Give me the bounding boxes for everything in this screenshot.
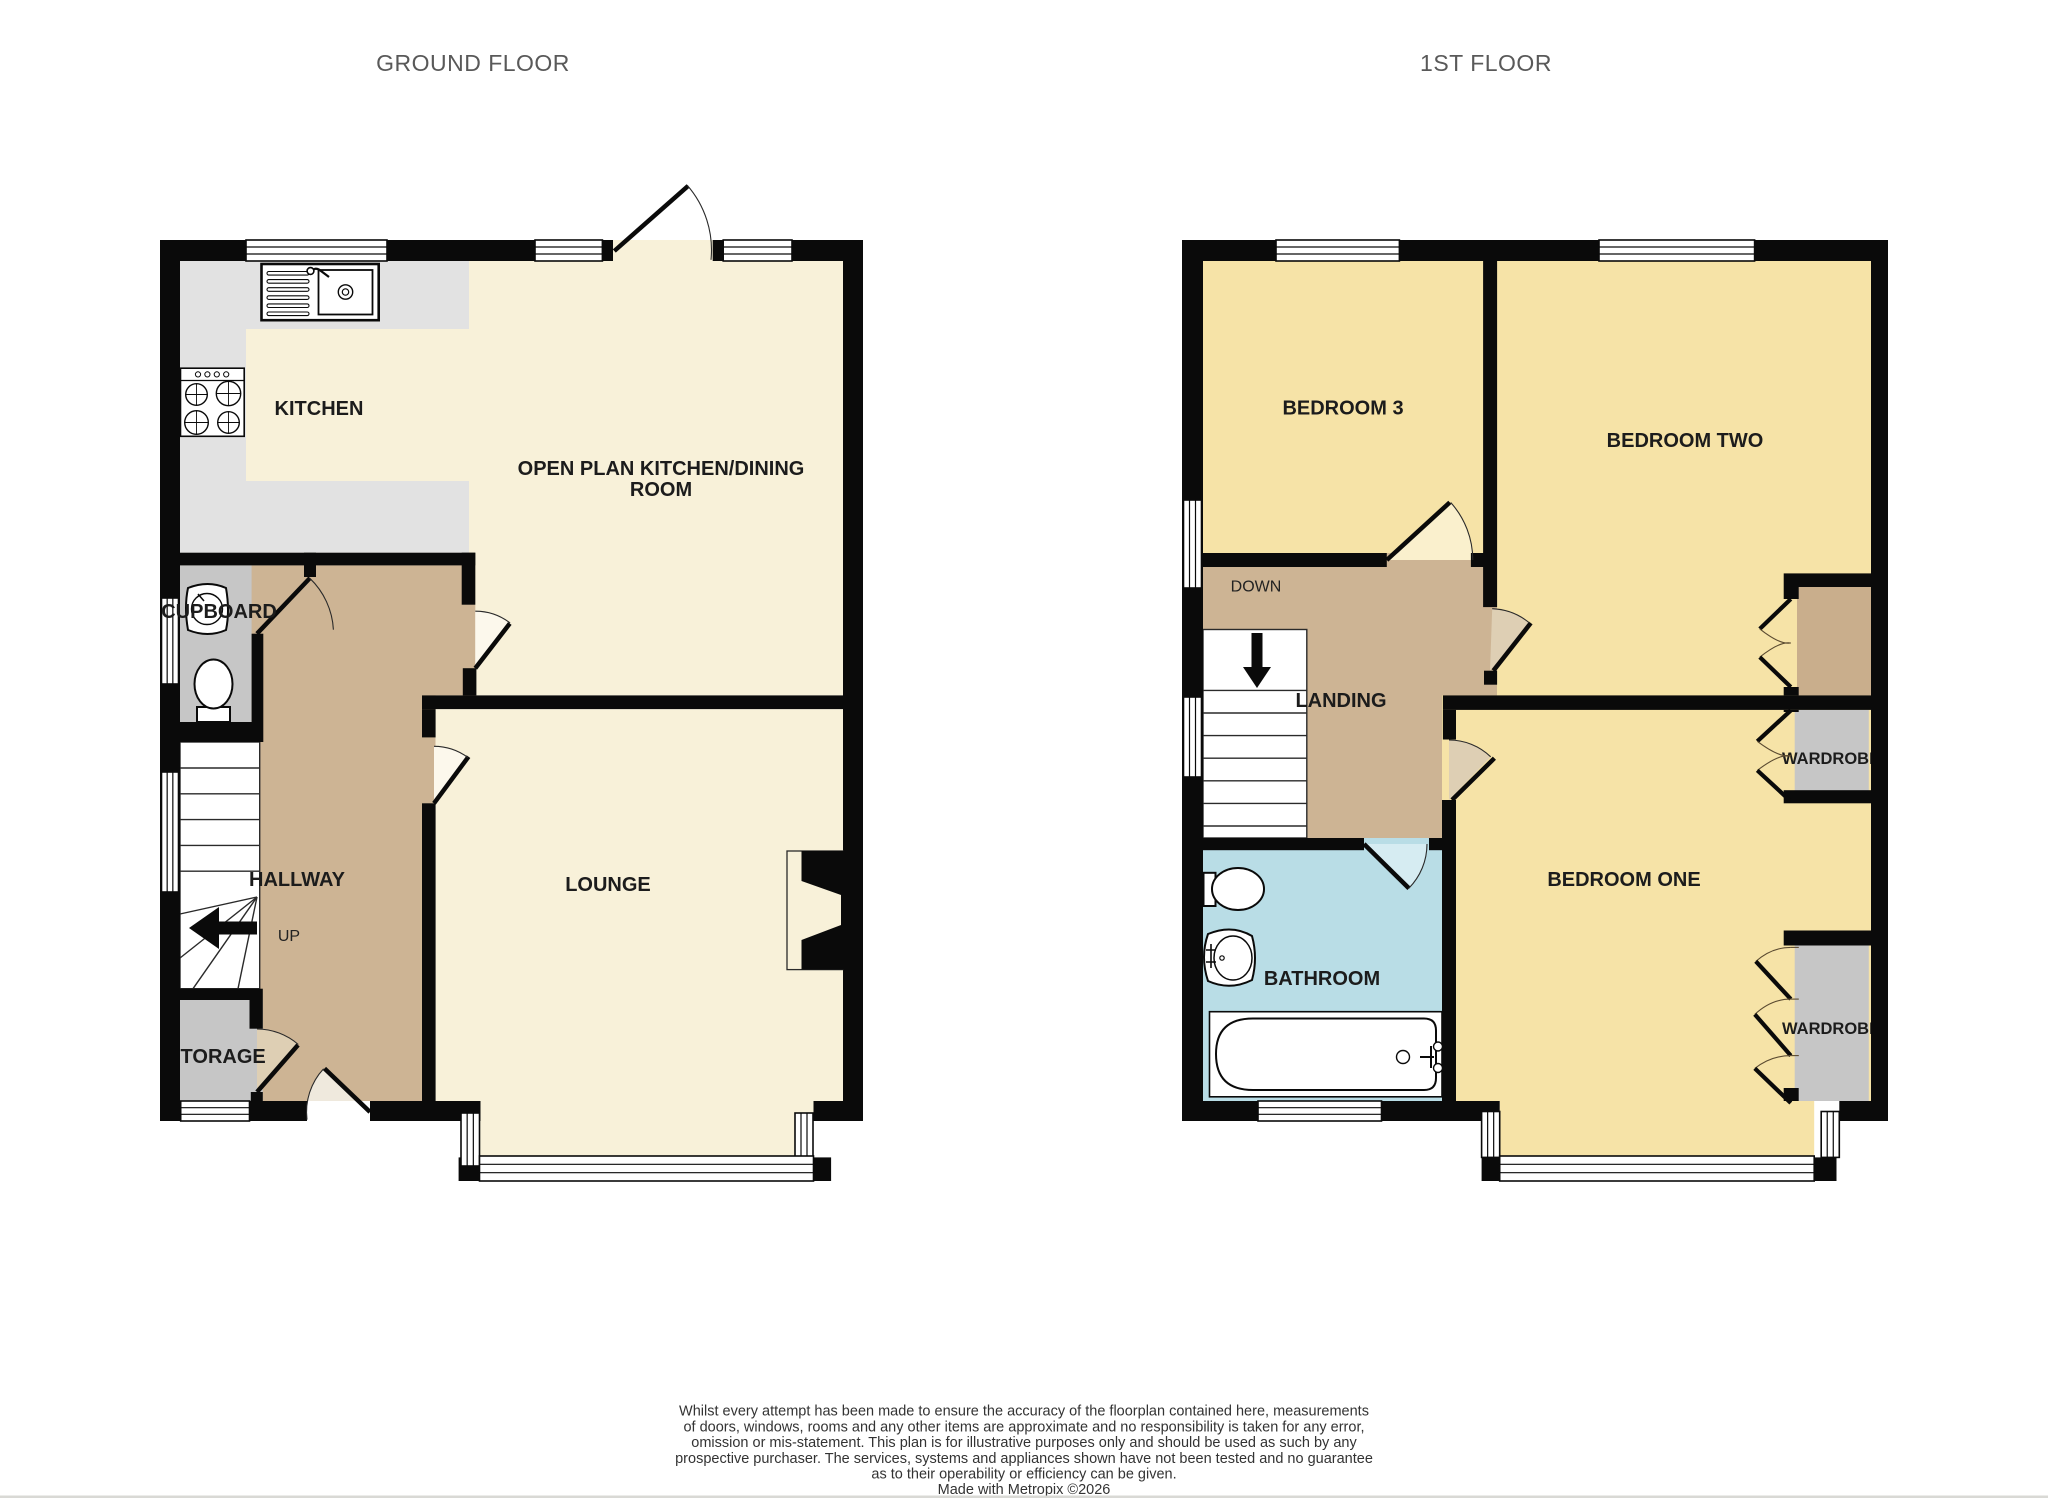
svg-text:CUPBOARD: CUPBOARD [161,601,277,623]
svg-text:ROOM: ROOM [630,479,692,501]
svg-text:BEDROOM 3: BEDROOM 3 [1282,398,1403,420]
svg-text:as to their operability or eff: as to their operability or efficiency ca… [871,1467,1176,1483]
svg-text:LANDING: LANDING [1295,690,1386,712]
svg-text:WARDROBE: WARDROBE [1782,1020,1880,1038]
svg-text:of doors, windows, rooms and a: of doors, windows, rooms and any other i… [683,1419,1364,1435]
svg-text:Whilst every attempt has been: Whilst every attempt has been made to en… [679,1404,1369,1420]
svg-text:BEDROOM TWO: BEDROOM TWO [1607,430,1764,452]
svg-text:GROUND FLOOR: GROUND FLOOR [376,50,570,76]
svg-text:BEDROOM ONE: BEDROOM ONE [1547,869,1700,891]
svg-text:BATHROOM: BATHROOM [1264,968,1380,990]
svg-text:1ST FLOOR: 1ST FLOOR [1420,50,1552,76]
svg-text:WARDROBE: WARDROBE [1782,750,1880,768]
svg-text:LOUNGE: LOUNGE [565,874,651,896]
svg-text:UP: UP [278,928,300,945]
svg-text:HALLWAY: HALLWAY [249,869,346,891]
svg-text:omission or mis-statement. Thi: omission or mis-statement. This plan is … [691,1435,1357,1451]
svg-text:OPEN PLAN KITCHEN/DINING: OPEN PLAN KITCHEN/DINING [518,458,805,480]
svg-text:DOWN: DOWN [1231,579,1282,596]
svg-text:STORAGE: STORAGE [167,1046,266,1068]
svg-text:prospective purchaser. The ser: prospective purchaser. The services, sys… [675,1451,1373,1467]
svg-text:KITCHEN: KITCHEN [275,398,364,420]
